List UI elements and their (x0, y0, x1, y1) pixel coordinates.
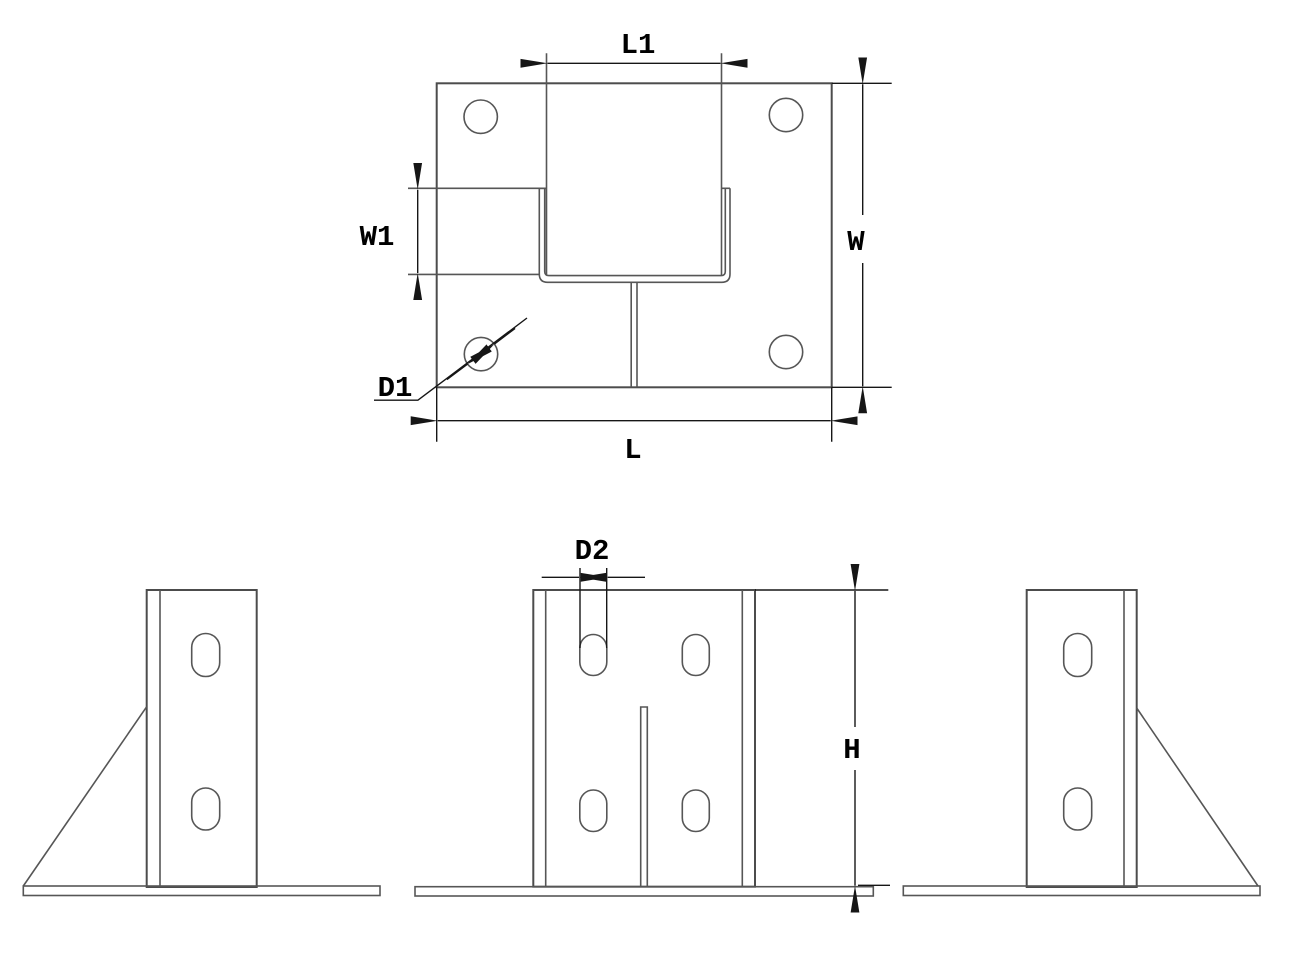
dim-H: H (755, 590, 890, 886)
channel-outer-edge (539, 188, 730, 282)
front-base-plate (415, 887, 873, 896)
dim-L: L (437, 387, 832, 467)
drawing-canvas: L1 W1 W L D1 (0, 0, 1300, 962)
tab-lines (408, 188, 546, 274)
dim-label-D1: D1 (378, 372, 413, 405)
left-column-slots (192, 634, 220, 831)
dim-D1: D1 (374, 318, 527, 405)
front-slots (580, 635, 710, 832)
slot-upper (1064, 634, 1092, 677)
channel-inner-edge (545, 188, 726, 275)
mounting-holes (464, 98, 803, 371)
slot-top-right (682, 635, 709, 676)
ext-lines-D2 (580, 568, 607, 648)
slot-lower (1064, 788, 1092, 830)
slot-upper (192, 634, 220, 677)
hole-top-right (769, 98, 802, 131)
right-gusset-hypotenuse (1137, 708, 1258, 886)
dim-label-H: H (843, 734, 860, 767)
dim-W1: W1 (360, 190, 418, 273)
dim-label-D2: D2 (575, 535, 610, 568)
front-view: D2 H (415, 535, 890, 896)
ext-lines-H (755, 590, 890, 885)
front-outline (533, 590, 755, 887)
right-side-view (903, 590, 1260, 896)
left-gusset-hypotenuse (23, 707, 146, 886)
slot-bottom-right (682, 790, 709, 832)
slot-lower (192, 788, 220, 830)
arrow-D1-upper (494, 328, 515, 344)
dim-label-L1: L1 (621, 29, 656, 62)
dim-L1: L1 (548, 29, 721, 63)
dim-W: W (832, 83, 892, 387)
dim-D2: D2 (542, 535, 645, 648)
dim-label-W1: W1 (360, 221, 395, 254)
slot-bottom-left (580, 790, 607, 832)
right-column-slots (1064, 634, 1092, 831)
post-base-bracket-drawing: L1 W1 W L D1 (0, 0, 1300, 962)
front-flange-lines (546, 590, 743, 887)
dim-label-L: L (624, 434, 641, 467)
arrow-D1-lower (447, 364, 468, 380)
slot-top-left (580, 635, 607, 676)
front-center-gusset-slot (641, 707, 648, 887)
hole-top-left (464, 100, 497, 133)
dim-label-W: W (847, 226, 865, 259)
hole-bottom-right (769, 335, 802, 368)
center-gusset-edge (631, 282, 637, 387)
left-side-view (23, 590, 380, 896)
hole-bottom-left (464, 337, 497, 370)
post-outline (547, 53, 722, 275)
top-view: L1 W1 W L D1 (360, 29, 892, 467)
